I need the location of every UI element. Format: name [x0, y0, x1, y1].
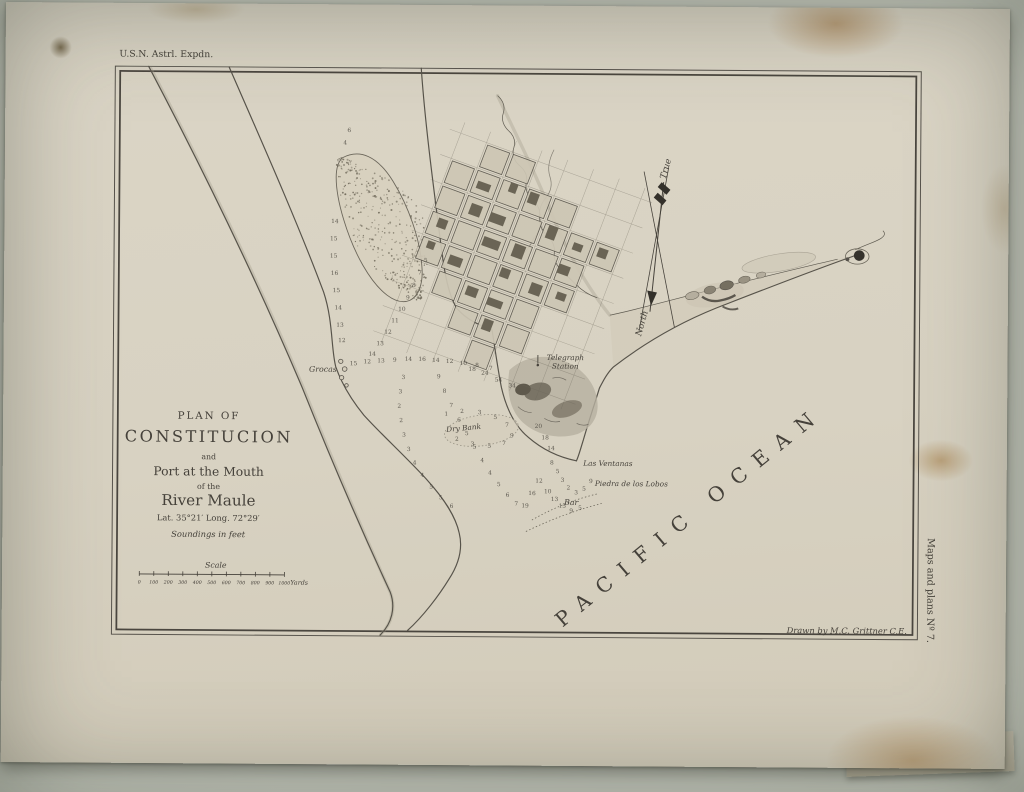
sounding-value: 2: [397, 404, 401, 410]
sounding-value: 2: [399, 418, 403, 424]
expedition-note: U.S.N. Astrl. Expdn.: [119, 49, 213, 61]
sounding-value: 19: [521, 504, 529, 510]
scale-tick-label: 1000: [278, 581, 290, 587]
title-line-of-the: of the: [197, 482, 220, 491]
sounding-value: 16: [528, 491, 536, 497]
scale-ticks: 01002003004005006007008009001000: [138, 571, 291, 587]
sounding-value: 13: [377, 359, 385, 365]
sounding-value: 34: [508, 383, 516, 389]
scale-unit: Yards: [290, 580, 309, 587]
sounding-value: 5: [493, 415, 497, 421]
sounding-value: 15: [333, 288, 341, 294]
sounding-value: 14: [331, 219, 339, 225]
scale-tick-label: 700: [236, 580, 245, 586]
sounding-value: 8: [550, 461, 554, 467]
side-note: Maps and plans Nº 7.: [924, 538, 936, 643]
sounding-value: 20: [535, 424, 543, 430]
scale-tick-label: 400: [192, 580, 202, 586]
scale-tick-label: 200: [163, 580, 173, 586]
sounding-value: 7: [502, 441, 506, 447]
sounding-value: 14: [547, 446, 555, 452]
sounding-value: 16: [331, 271, 339, 277]
title-line-port: Port at the Mouth: [153, 464, 264, 479]
map-drawing: U.S.N. Astrl. Expdn.: [1, 2, 1010, 769]
west-coast-line: [145, 66, 397, 635]
scale-tick-label: 500: [207, 580, 216, 586]
sounding-value: 3: [402, 433, 406, 439]
scale-tick-label: 300: [178, 580, 187, 586]
sounding-value: 9: [510, 433, 514, 439]
sounding-value: 5: [497, 482, 501, 488]
sounding-value: 9: [406, 295, 410, 301]
sounding-value: 2: [566, 486, 570, 492]
sounding-value: 14: [432, 358, 440, 364]
sounding-value: 3: [478, 410, 482, 416]
river-west-bank: [225, 67, 464, 631]
sounding-value: 9: [569, 509, 573, 515]
sounding-value: 4: [343, 141, 347, 147]
sounding-value: 15: [350, 361, 358, 367]
scale-tick-label: 0: [138, 580, 141, 586]
sounding-value: 7: [418, 271, 422, 277]
sounding-value: 5: [439, 495, 443, 501]
scale-tick-label: 100: [149, 580, 158, 586]
pacific-ocean-label: PACIFIC OCEAN: [550, 400, 829, 631]
map-sheet: U.S.N. Astrl. Expdn.: [1, 2, 1010, 769]
place-label: Grocas: [309, 365, 337, 374]
scale-tick-label: 600: [222, 580, 231, 586]
title-line-latlong: Lat. 35°21′ Long. 72°29′: [157, 512, 260, 523]
place-label: Station: [552, 362, 579, 371]
river-island: [335, 154, 423, 302]
sounding-value: 3: [561, 478, 565, 484]
sounding-value: 5: [429, 485, 433, 491]
sounding-value: 54: [495, 378, 503, 384]
sounding-value: 4: [413, 461, 417, 467]
sounding-value: 9: [393, 358, 397, 364]
sounding-value: 14: [368, 352, 376, 358]
title-line-soundings: Soundings in feet: [171, 529, 246, 539]
map-frame-outer: [111, 66, 921, 640]
sounding-value: 15: [330, 254, 338, 260]
sounding-value: 13: [551, 497, 559, 503]
sounding-value: 13: [336, 323, 344, 329]
sounding-value: 5: [487, 444, 491, 450]
sounding-value: 1: [444, 412, 448, 418]
sounding-value: 15: [330, 236, 338, 242]
sounding-value: 10: [460, 361, 468, 367]
sounding-value: 4: [420, 473, 424, 479]
sounding-value: 14: [405, 357, 413, 363]
sounding-value: 4: [488, 471, 492, 477]
sounding-value: 8: [412, 283, 416, 289]
sounding-value: 6: [450, 504, 454, 510]
sounding-value: 18: [468, 367, 476, 373]
scale-label: Scale: [205, 561, 227, 570]
sounding-value: 16: [418, 357, 426, 363]
sounding-value: 3: [471, 442, 475, 448]
west-coast-shading: [147, 68, 397, 634]
sounding-value: 12: [535, 479, 543, 485]
drawn-by-credit: Drawn by M.C. Grittner C.E.: [786, 625, 907, 636]
sounding-value: 4: [480, 458, 484, 464]
scale-bar: Scale 01002003004005006007008009001000 Y…: [138, 560, 309, 586]
title-line-river-maule: River Maule: [161, 491, 255, 509]
sounding-value: 11: [391, 318, 399, 324]
sounding-value: 8: [443, 389, 447, 395]
title-line-and: and: [201, 452, 216, 461]
sounding-value: 10: [544, 489, 552, 495]
sounding-value: 5: [582, 487, 586, 493]
sounding-value: 12: [446, 359, 454, 365]
islet: [845, 230, 884, 264]
sounding-value: 5: [578, 506, 582, 512]
sounding-value: 13: [376, 341, 384, 347]
sounding-value: 12: [384, 330, 392, 336]
compass-true-label: True: [659, 158, 674, 180]
sounding-value: 3: [407, 447, 411, 453]
title-block: PLAN OF CONSTITUCION and Port at the Mou…: [124, 410, 293, 539]
sounding-value: 9: [589, 479, 593, 485]
title-line-plan-of: PLAN OF: [178, 411, 241, 422]
sounding-value: 6: [506, 493, 510, 499]
sounding-value: 2: [455, 437, 459, 443]
grocas-point-rocks: [338, 359, 348, 387]
sounding-value: 9: [437, 374, 441, 380]
sounding-value: 5: [424, 258, 428, 264]
sounding-value: 24: [481, 371, 489, 377]
sounding-value: 14: [334, 305, 342, 311]
place-label: Las Ventanas: [582, 459, 633, 468]
sounding-value: 3: [402, 375, 406, 381]
sounding-value: 7: [505, 423, 509, 429]
sounding-value: 2: [460, 409, 464, 415]
sounding-value: 7: [514, 502, 518, 508]
sounding-value: 3: [574, 490, 578, 496]
sounding-value: 6: [347, 128, 351, 134]
sounding-value: 3: [398, 389, 402, 395]
sounding-value: 7: [449, 403, 453, 409]
sounding-value: 12: [363, 359, 371, 365]
place-label: Piedra de los Lobos: [594, 479, 668, 488]
sounding-value: 18: [541, 436, 549, 442]
scale-tick-label: 800: [251, 580, 260, 586]
sounding-value: 5: [556, 469, 560, 475]
arrow-head: [647, 291, 657, 306]
title-line-constitucion: CONSTITUCION: [125, 427, 293, 447]
place-label: Bar: [563, 498, 580, 507]
photo-backdrop: U.S.N. Astrl. Expdn.: [0, 0, 1024, 792]
sounding-value: 10: [398, 307, 406, 313]
sounding-value: 7: [489, 366, 493, 372]
scale-tick-label: 900: [265, 580, 274, 586]
sounding-value: 12: [338, 338, 346, 344]
